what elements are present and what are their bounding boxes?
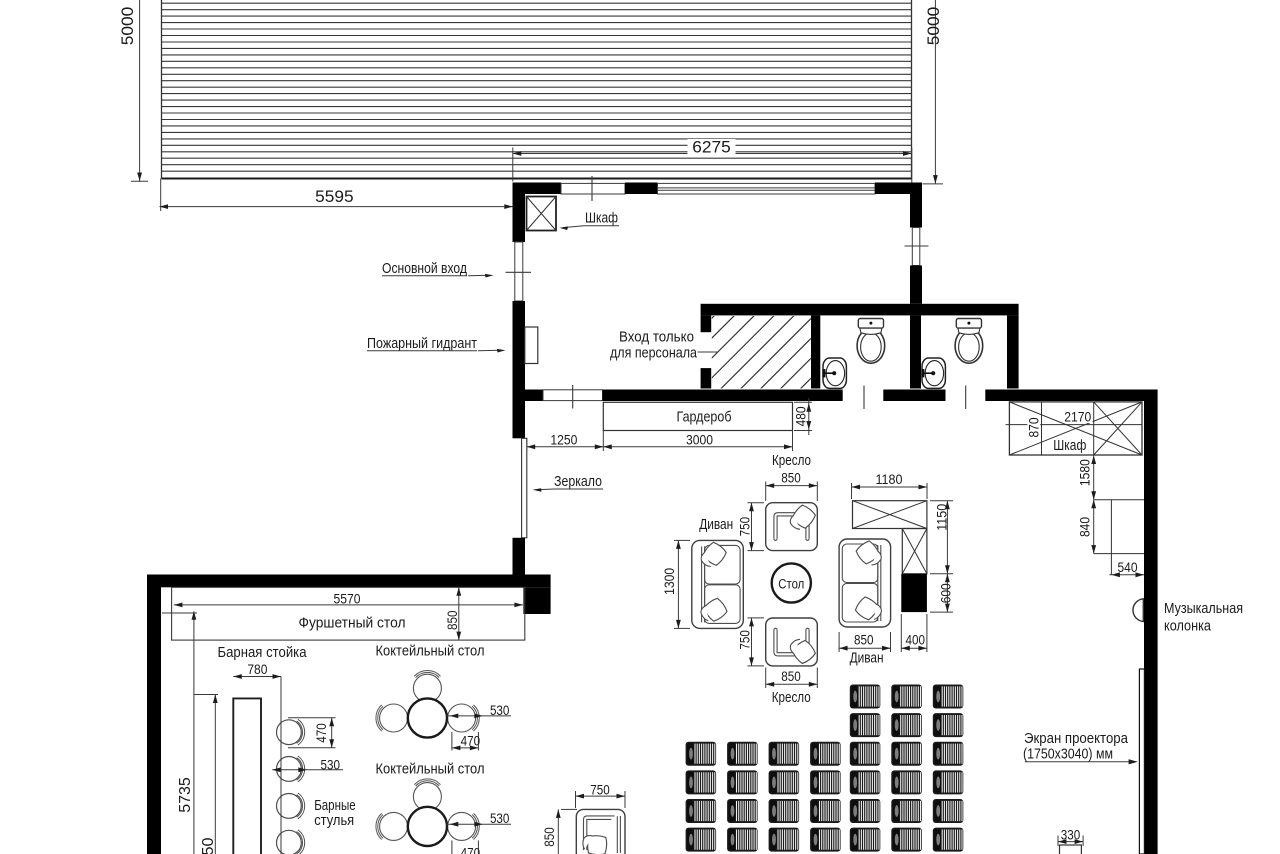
svg-text:850: 850 [445, 611, 460, 631]
svg-text:Зеркало: Зеркало [554, 474, 602, 490]
svg-text:Шкаф: Шкаф [585, 211, 618, 227]
svg-text:колонка: колонка [1164, 619, 1212, 635]
svg-text:Экран проектора: Экран проектора [1024, 731, 1129, 747]
svg-text:850: 850 [781, 470, 801, 485]
svg-text:480: 480 [794, 406, 809, 426]
svg-text:Барная стойка: Барная стойка [218, 645, 308, 661]
svg-text:2170: 2170 [1064, 409, 1091, 424]
svg-text:Коктейльный стол: Коктейльный стол [376, 644, 485, 660]
svg-text:600: 600 [938, 583, 953, 603]
svg-text:530: 530 [490, 703, 510, 718]
svg-text:5000: 5000 [924, 7, 943, 46]
svg-text:780: 780 [247, 662, 267, 677]
svg-text:Шкаф: Шкаф [1053, 438, 1086, 454]
svg-text:3000: 3000 [686, 432, 713, 447]
svg-text:Коктейльный стол: Коктейльный стол [376, 761, 485, 777]
svg-text:850: 850 [781, 669, 801, 684]
svg-text:540: 540 [1118, 560, 1138, 575]
svg-text:330: 330 [1061, 828, 1081, 843]
svg-text:стулья: стулья [314, 813, 354, 829]
svg-text:400: 400 [906, 632, 926, 647]
svg-text:Стол: Стол [778, 576, 804, 591]
svg-text:Гардероб: Гардероб [677, 410, 732, 426]
svg-text:5570: 5570 [334, 591, 361, 606]
svg-text:Диван: Диван [699, 517, 733, 533]
svg-text:530: 530 [321, 757, 341, 772]
svg-text:1180: 1180 [876, 472, 903, 487]
svg-text:1300: 1300 [662, 568, 677, 595]
svg-text:750: 750 [738, 630, 753, 650]
svg-text:1150: 1150 [934, 504, 949, 531]
svg-text:840: 840 [1078, 517, 1093, 537]
svg-text:5735: 5735 [177, 777, 194, 813]
svg-text:530: 530 [490, 811, 510, 826]
svg-text:5595: 5595 [315, 187, 354, 206]
svg-text:850: 850 [200, 837, 217, 854]
svg-text:Пожарный гидрант: Пожарный гидрант [367, 336, 477, 352]
svg-text:470: 470 [314, 723, 329, 743]
svg-text:850: 850 [542, 827, 557, 847]
svg-text:Кресло: Кресло [772, 453, 811, 469]
svg-text:(1750х3040) мм: (1750х3040) мм [1023, 747, 1113, 763]
svg-text:850: 850 [854, 632, 874, 647]
svg-text:Музыкальная: Музыкальная [1164, 601, 1243, 617]
svg-text:Фуршетный стол: Фуршетный стол [299, 616, 406, 632]
svg-text:750: 750 [738, 517, 753, 537]
svg-text:Вход только: Вход только [619, 329, 694, 345]
svg-text:870: 870 [1027, 418, 1042, 438]
svg-text:Основной вход: Основной вход [382, 261, 467, 277]
svg-text:Барные: Барные [314, 798, 356, 814]
svg-text:750: 750 [590, 782, 610, 797]
svg-text:6275: 6275 [692, 138, 731, 157]
svg-text:Диван: Диван [850, 651, 884, 667]
svg-text:1580: 1580 [1078, 459, 1093, 486]
svg-text:1250: 1250 [550, 432, 577, 447]
svg-text:470: 470 [461, 734, 481, 749]
svg-text:Кресло: Кресло [772, 690, 811, 706]
svg-text:470: 470 [461, 845, 481, 854]
svg-text:для персонала: для персонала [610, 345, 698, 361]
svg-text:5000: 5000 [118, 7, 137, 46]
